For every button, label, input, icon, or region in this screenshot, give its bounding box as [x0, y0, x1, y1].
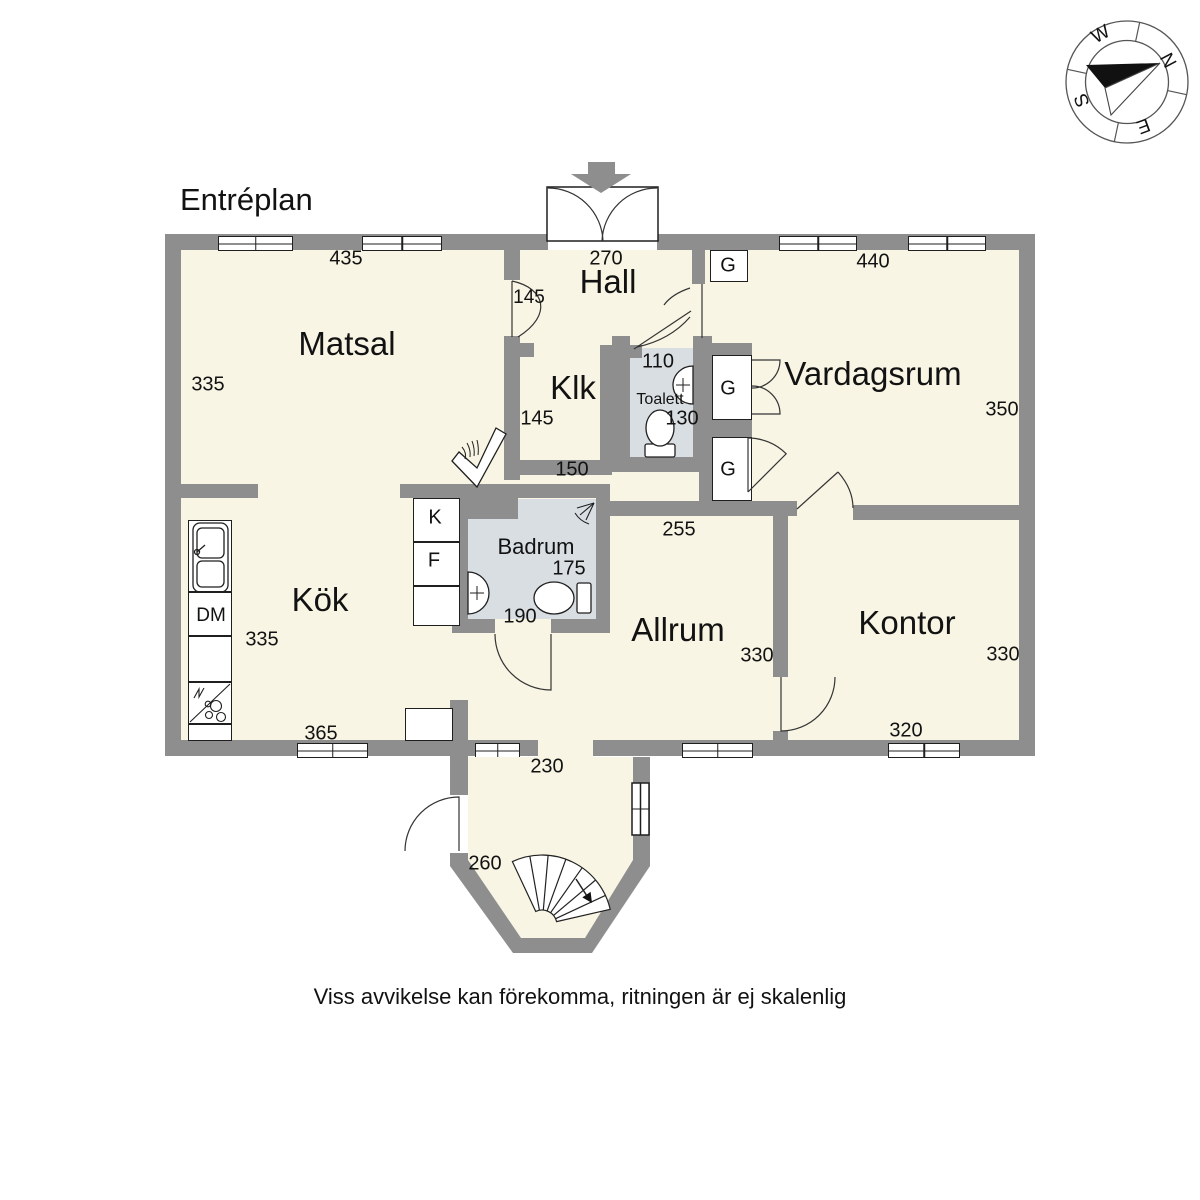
dim-toalett-width: 110	[642, 351, 674, 374]
door-closet-g2	[752, 360, 780, 414]
dim-kontor-width: 320	[889, 720, 922, 743]
entrance	[547, 162, 658, 250]
room-label-kontor: Kontor	[858, 604, 955, 642]
dim-badrum-width: 190	[503, 606, 536, 629]
room-label-toalett: Toalett	[636, 391, 683, 409]
label-garderob-2: G	[720, 378, 736, 401]
room-label-vardagsrum: Vardagsrum	[784, 355, 961, 393]
dim-hall-width: 270	[589, 248, 622, 271]
dim-klk-depth: 145	[520, 408, 553, 431]
plan-lineart	[0, 0, 1200, 1200]
stove-icon	[190, 684, 230, 722]
door-hall-vardagsrum	[664, 284, 702, 338]
room-label-kok: Kök	[292, 581, 349, 619]
dim-vardagsrum-width: 440	[856, 251, 889, 274]
label-garderob-3: G	[720, 459, 736, 482]
door-badrum	[495, 634, 551, 690]
dim-kontor-depth: 330	[986, 644, 1019, 667]
door-kontor	[781, 677, 835, 731]
dim-allrum-opening: 255	[662, 519, 695, 542]
kitchen-sink-icon	[193, 523, 228, 592]
dim-badrum-depth: 175	[552, 558, 585, 581]
dim-allrum-depth: 330	[740, 645, 773, 668]
room-label-badrum: Badrum	[497, 534, 574, 560]
dim-matsal-depth: 335	[191, 374, 224, 397]
dim-matsal-width: 435	[329, 248, 362, 271]
label-garderob-1: G	[720, 255, 736, 278]
compass-icon	[1066, 21, 1188, 143]
dim-kok-depth: 335	[245, 629, 278, 652]
dim-hall-door: 145	[513, 287, 545, 309]
dim-kok-width: 365	[304, 723, 337, 746]
bay-door-arc	[405, 797, 459, 851]
bay-tower	[405, 757, 650, 953]
badrum-toilet-icon	[534, 582, 591, 614]
dim-trapp-width: 230	[530, 756, 563, 779]
disclaimer-note: Viss avvikelse kan förekomma, ritningen …	[314, 984, 847, 1010]
door-toalett	[634, 311, 691, 349]
badrum-sink-icon	[468, 572, 489, 614]
label-diskmaskin: DM	[196, 605, 226, 627]
label-frys: F	[428, 550, 440, 573]
dim-trapp-depth: 260	[468, 853, 501, 876]
door-closet-g3	[748, 438, 786, 492]
page-title: Entréplan	[180, 182, 313, 218]
room-label-allrum: Allrum	[631, 611, 725, 649]
floor-plan: Entréplan Matsal 435 335 Hall 270 145 Kl…	[0, 0, 1200, 1200]
fireplace-icon	[452, 428, 506, 487]
door-vardagsrum-allrum	[797, 472, 853, 509]
dim-vardagsrum-depth: 350	[985, 399, 1018, 422]
dim-toalett-depth: 130	[665, 408, 698, 431]
label-kyl: K	[428, 507, 441, 530]
shower-icon	[575, 503, 594, 524]
room-label-matsal: Matsal	[298, 325, 395, 363]
dim-klk-width: 150	[555, 459, 588, 482]
room-label-klk: Klk	[550, 369, 596, 407]
